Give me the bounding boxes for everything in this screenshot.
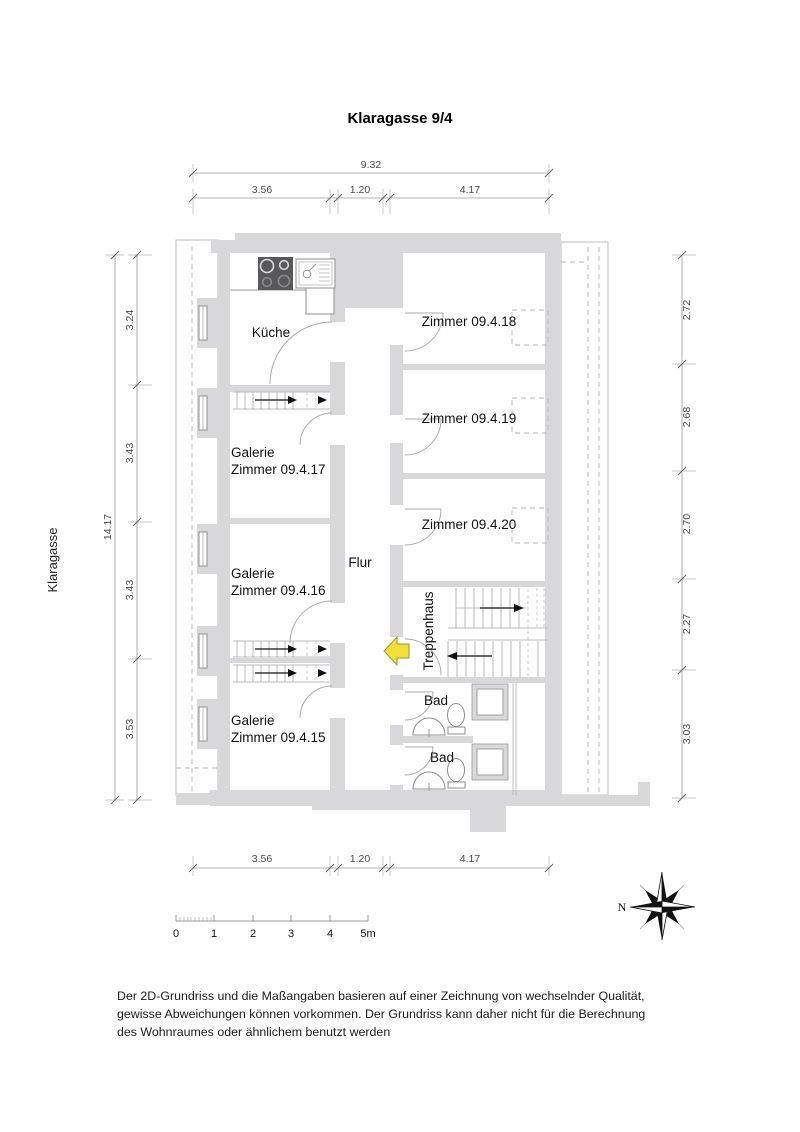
svg-text:Galerie: Galerie (231, 445, 275, 460)
scale-label-0: 0 (173, 928, 179, 940)
room-label-bad2: Bad (430, 750, 454, 765)
floorplan-canvas: Klaragasse 9/4 Klaragasse 9.32 3.56 1.20… (0, 0, 800, 1132)
disclaimer-text: Der 2D-Grundriss und die Maßangaben basi… (117, 989, 645, 1039)
door-g15 (300, 686, 332, 718)
kitchen-fixtures (230, 257, 335, 314)
north-label: N (618, 900, 627, 914)
dim-left-overall: 14.17 (102, 514, 114, 540)
dimension-left: 14.17 3.24 3.43 3.43 3.53 (102, 251, 152, 804)
dim-top-seg3: 4.17 (460, 184, 481, 196)
room-label-g16: Galerie Zimmer 09.4.16 (231, 566, 326, 598)
shower-icon (472, 684, 508, 720)
dimension-top: 9.32 3.56 1.20 4.17 (189, 159, 553, 214)
dim-right-seg5: 3.03 (681, 724, 693, 745)
disclaimer-line-1: Der 2D-Grundriss und die Maßangaben basi… (117, 989, 645, 1003)
dim-top-overall: 9.32 (361, 159, 382, 171)
dimension-right: 2.72 2.68 2.70 2.27 3.03 (672, 251, 696, 802)
svg-text:Galerie: Galerie (231, 566, 275, 581)
kitchen-cabinet (306, 288, 334, 314)
room-label-z18: Zimmer 09.4.18 (422, 314, 517, 329)
door-g17 (300, 413, 332, 445)
disclaimer-line-2: gewisse Abweichungen können vorkommen. D… (117, 1007, 645, 1021)
room-label-z19: Zimmer 09.4.19 (422, 411, 517, 426)
dim-bottom-seg3: 4.17 (460, 853, 481, 865)
room-label-g15: Galerie Zimmer 09.4.15 (231, 713, 326, 745)
entry-arrow-icon (384, 637, 409, 665)
gallery-stair-g16 (233, 641, 330, 657)
compass-rose-icon: N (618, 872, 695, 940)
chimney (470, 806, 506, 832)
washbasin-icon (413, 718, 445, 737)
scale-label-3: 3 (288, 928, 294, 940)
staircase-treppenhaus (447, 588, 548, 677)
svg-text:Zimmer 09.4.16: Zimmer 09.4.16 (231, 583, 326, 598)
dim-top-seg1: 3.56 (252, 184, 273, 196)
svg-text:Galerie: Galerie (231, 713, 275, 728)
room-label-treppenhaus: Treppenhaus (421, 591, 436, 670)
dim-bottom-seg1: 3.56 (252, 853, 273, 865)
gallery-stair-g17 (233, 392, 330, 409)
dimension-bottom: 3.56 1.20 4.17 (189, 853, 553, 876)
dim-left-seg1: 3.24 (124, 310, 136, 331)
page-title: Klaragasse 9/4 (347, 110, 453, 127)
shower-icon (472, 744, 508, 780)
toilet-icon (448, 704, 466, 735)
gallery-stair-g15 (233, 665, 330, 682)
room-label-kueche: Küche (252, 325, 290, 340)
washbasin-icon (413, 772, 445, 791)
scale-bar: 0 1 2 3 4 5m (173, 915, 376, 940)
dim-left-seg2: 3.43 (124, 443, 136, 464)
scale-label-4: 4 (327, 928, 333, 940)
room-label-z20: Zimmer 09.4.20 (422, 517, 517, 532)
svg-text:Zimmer 09.4.15: Zimmer 09.4.15 (231, 730, 326, 745)
room-label-bad1: Bad (424, 693, 448, 708)
roof-dashed-areas (512, 310, 548, 543)
disclaimer-line-3: des Wohnraumes oder ähnlichem benutzt we… (117, 1025, 390, 1039)
door-g16 (290, 601, 332, 643)
dim-left-seg4: 3.53 (124, 719, 136, 740)
scale-label-5m: 5m (360, 928, 375, 940)
dim-left-seg3: 3.43 (124, 580, 136, 601)
doors (270, 313, 443, 775)
dim-right-seg4: 2.27 (681, 614, 693, 635)
scale-label-1: 1 (211, 928, 217, 940)
stove-icon (258, 257, 293, 290)
svg-text:Zimmer 09.4.17: Zimmer 09.4.17 (231, 462, 326, 477)
right-roof-strip (561, 242, 608, 795)
scale-label-2: 2 (250, 928, 256, 940)
dim-right-seg2: 2.68 (681, 407, 693, 428)
dim-right-seg3: 2.70 (681, 514, 693, 535)
dim-top-seg2: 1.20 (350, 184, 371, 196)
dim-bottom-seg2: 1.20 (350, 853, 371, 865)
dim-right-seg1: 2.72 (681, 300, 693, 321)
floorplan-page: Klaragasse 9/4 Klaragasse 9.32 3.56 1.20… (0, 0, 800, 1132)
street-label: Klaragasse (45, 527, 60, 592)
room-label-g17: Galerie Zimmer 09.4.17 (231, 445, 326, 477)
door-bad2 (405, 747, 433, 775)
kitchen-sink-icon (296, 259, 335, 288)
room-label-flur: Flur (348, 555, 372, 570)
